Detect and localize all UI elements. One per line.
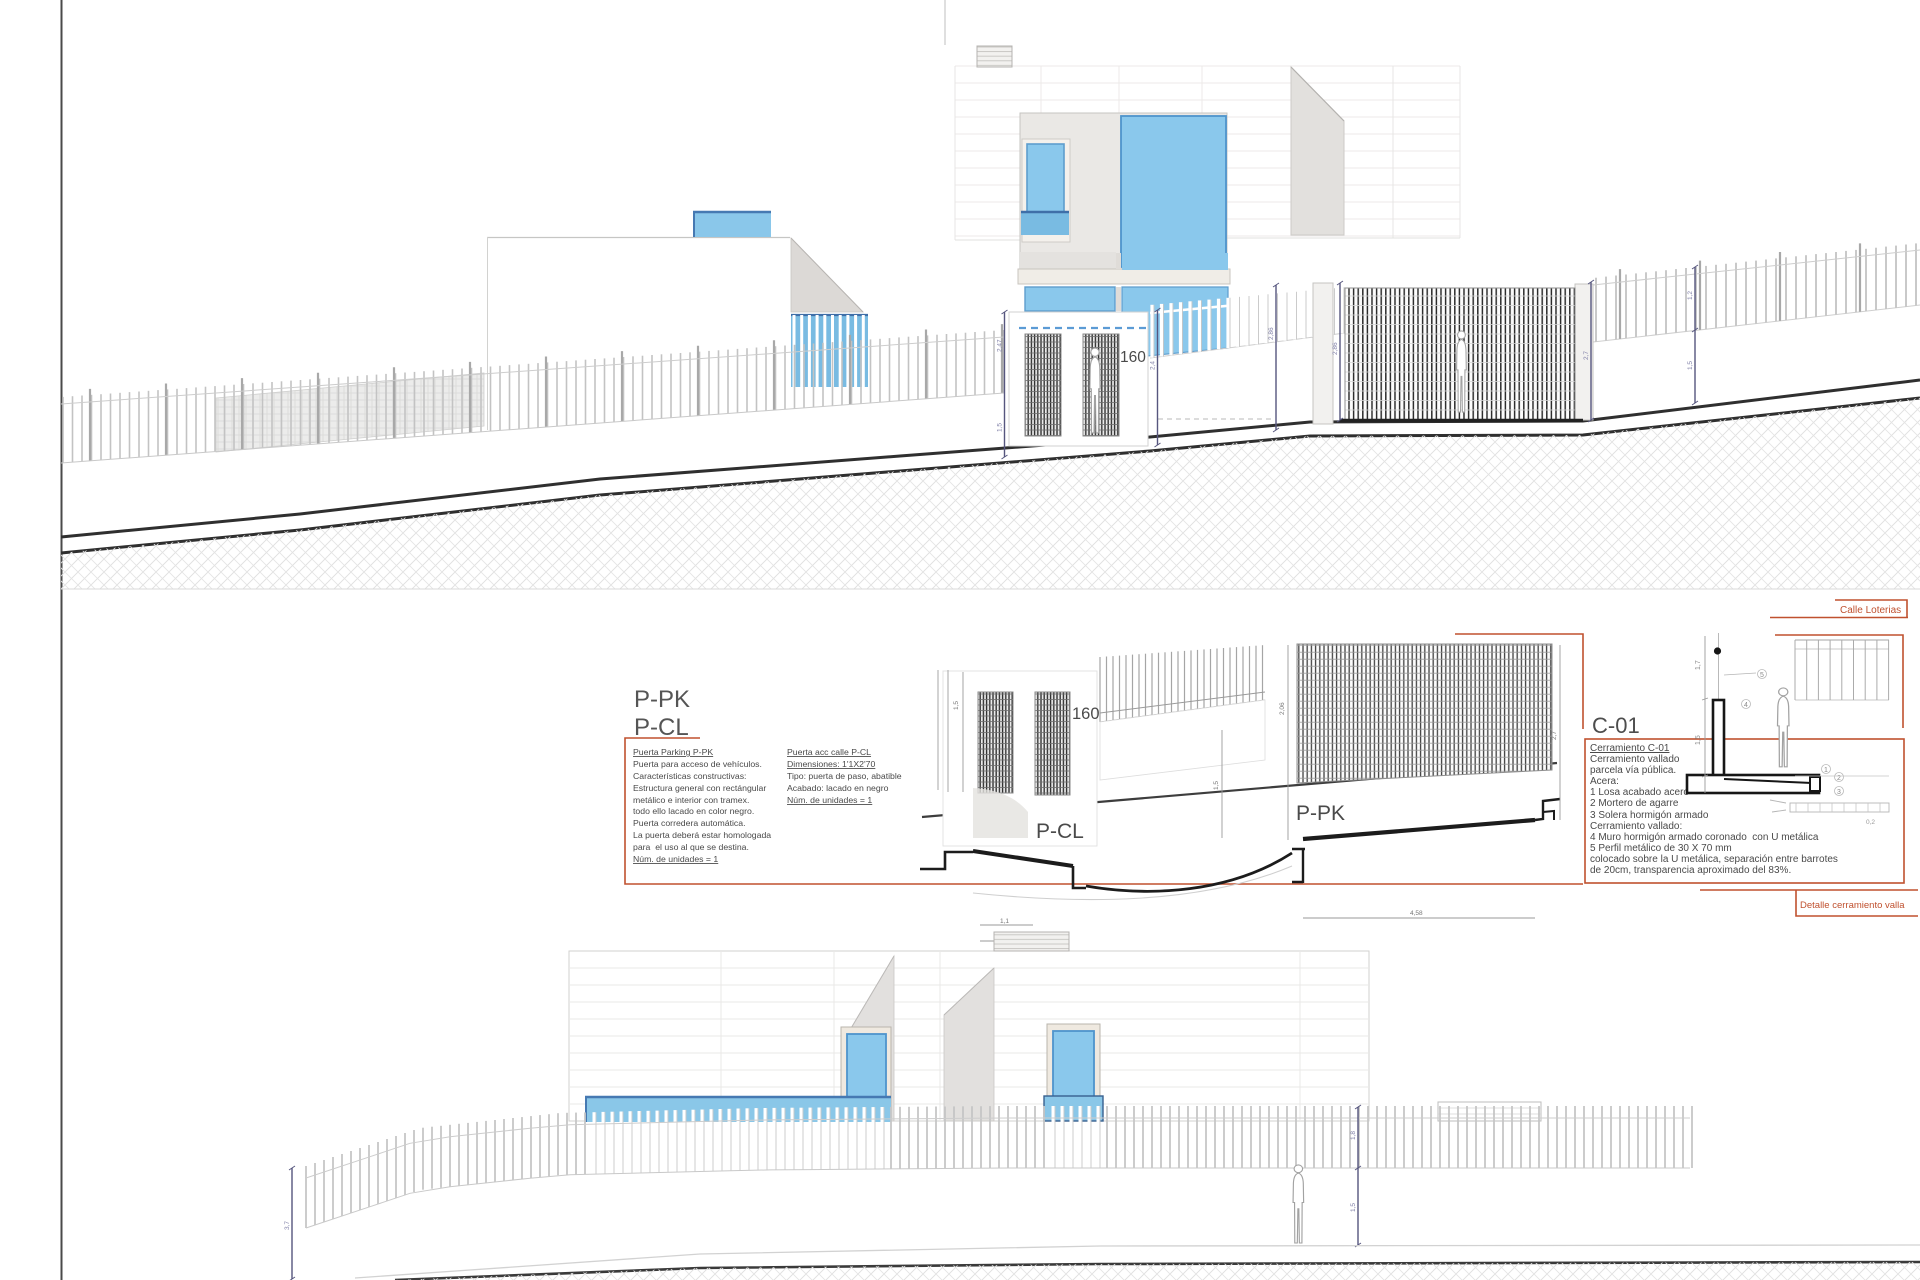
svg-text:0,2: 0,2 — [1866, 819, 1875, 826]
svg-text:La puerta deberá estar homolog: La puerta deberá estar homologada — [633, 830, 771, 840]
svg-text:C-01: C-01 — [1592, 713, 1640, 738]
svg-text:metálico e interior con tramex: metálico e interior con tramex. — [633, 795, 749, 805]
svg-text:1,5: 1,5 — [953, 701, 960, 710]
svg-text:1 Losa acabado acero: 1 Losa acabado acero — [1590, 787, 1689, 798]
svg-text:Tipo: puerta de paso, abatible: Tipo: puerta de paso, abatible — [787, 771, 902, 781]
svg-text:Estructura general con rectáng: Estructura general con rectángular — [633, 783, 766, 793]
svg-text:2,47: 2,47 — [997, 339, 1004, 352]
svg-text:1,1: 1,1 — [1000, 918, 1009, 925]
svg-text:1,8: 1,8 — [1350, 1131, 1357, 1140]
svg-text:4 Muro hormigón armado coronad: 4 Muro hormigón armado coronado con U me… — [1590, 832, 1819, 843]
svg-text:Puerta Parking P-PK: Puerta Parking P-PK — [633, 747, 713, 757]
svg-text:2,86: 2,86 — [1332, 342, 1339, 355]
svg-text:1,5: 1,5 — [1213, 781, 1220, 790]
svg-text:1,5: 1,5 — [1687, 361, 1694, 370]
svg-text:1,5: 1,5 — [1350, 1203, 1357, 1212]
svg-text:4: 4 — [1744, 702, 1748, 709]
svg-text:160: 160 — [1072, 705, 1100, 723]
svg-text:todo ello lacado en color negr: todo ello lacado en color negro. — [633, 806, 754, 816]
svg-text:3 Solera hormigón armado: 3 Solera hormigón armado — [1590, 810, 1709, 821]
svg-text:P-PK: P-PK — [634, 686, 690, 713]
svg-text:parcela vía pública.: parcela vía pública. — [1590, 765, 1676, 776]
svg-text:P-CL: P-CL — [1036, 820, 1084, 843]
svg-text:de 20cm, transparencia aproxim: de 20cm, transparencia aproximado del 83… — [1590, 865, 1791, 876]
svg-text:Puerta corredera automática.: Puerta corredera automática. — [633, 818, 746, 828]
svg-text:Cerramiento vallado:: Cerramiento vallado: — [1590, 821, 1682, 832]
svg-text:Detalle cerramiento valla: Detalle cerramiento valla — [1800, 900, 1905, 911]
svg-text:2,06: 2,06 — [1279, 702, 1286, 715]
svg-text:3: 3 — [1837, 789, 1841, 796]
svg-text:Calle Loterias: Calle Loterias — [1840, 605, 1901, 616]
svg-text:1: 1 — [1824, 767, 1828, 774]
svg-text:5: 5 — [1760, 672, 1764, 679]
svg-text:160: 160 — [1120, 349, 1146, 366]
svg-text:4,58: 4,58 — [1410, 910, 1423, 917]
svg-text:Dimensiones: 1'1X2'70: Dimensiones: 1'1X2'70 — [787, 759, 875, 769]
svg-text:Características constructivas:: Características constructivas: — [633, 771, 746, 781]
svg-text:Acabado: lacado en negro: Acabado: lacado en negro — [787, 783, 889, 793]
svg-text:Núm. de unidades = 1: Núm. de unidades = 1 — [787, 795, 872, 805]
svg-text:Núm. de unidades = 1: Núm. de unidades = 1 — [633, 854, 718, 864]
svg-text:2,4: 2,4 — [1150, 361, 1157, 370]
svg-text:P-CL: P-CL — [634, 714, 689, 741]
svg-text:Cerramiento C-01: Cerramiento C-01 — [1590, 743, 1670, 754]
svg-text:Acera:: Acera: — [1590, 776, 1619, 787]
svg-text:P-PK: P-PK — [1296, 802, 1345, 825]
svg-text:2,86: 2,86 — [1268, 327, 1275, 340]
svg-text:2,7: 2,7 — [1551, 731, 1558, 740]
svg-text:5 Perfil metálico de 30 X 70 m: 5 Perfil metálico de 30 X 70 mm — [1590, 843, 1732, 854]
svg-text:2 Mortero de agarre: 2 Mortero de agarre — [1590, 798, 1679, 809]
svg-text:1,7: 1,7 — [1695, 660, 1702, 670]
svg-text:1,5: 1,5 — [997, 423, 1004, 432]
svg-text:Puerta acc calle P-CL: Puerta acc calle P-CL — [787, 747, 871, 757]
svg-text:1,2: 1,2 — [1687, 291, 1694, 300]
svg-text:Cerramiento vallado: Cerramiento vallado — [1590, 754, 1680, 765]
svg-text:2,7: 2,7 — [1583, 351, 1590, 360]
svg-text:colocado sobre la U metálica,: colocado sobre la U metálica, separación… — [1590, 854, 1838, 865]
svg-text:1,5: 1,5 — [1695, 735, 1702, 745]
svg-text:3,7: 3,7 — [284, 1221, 291, 1230]
svg-text:Puerta para acceso de vehículo: Puerta para acceso de vehículos. — [633, 759, 762, 769]
svg-text:para el uso al que se destina: para el uso al que se destina. — [633, 842, 749, 852]
